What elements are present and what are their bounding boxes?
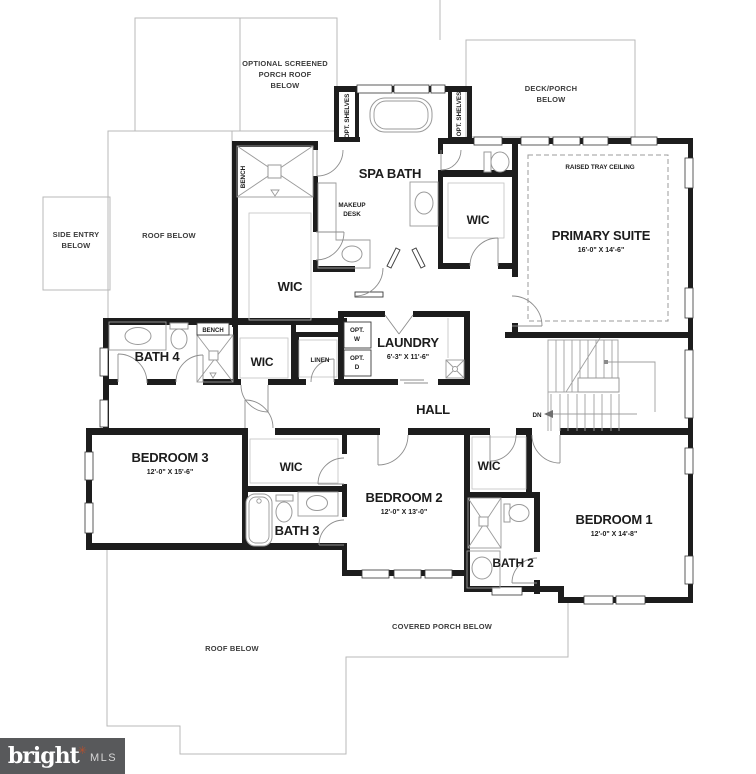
label-dn: DN	[532, 412, 542, 419]
label-wic-primary-b: WIC	[278, 279, 303, 294]
label-wic-hall: WIC	[251, 355, 274, 369]
opt-washer-box	[344, 322, 371, 348]
label-opt-d-1: OPT.	[350, 355, 364, 362]
label-deck-porch-2: BELOW	[537, 95, 567, 104]
label-opt-w-2: W	[354, 336, 360, 343]
label-covered-porch: COVERED PORCH BELOW	[392, 622, 493, 631]
label-laundry: LAUNDRY	[377, 335, 439, 350]
stairs	[544, 338, 655, 431]
label-roof-below-upper: ROOF BELOW	[142, 231, 196, 240]
label-bedroom1: BEDROOM 1	[576, 512, 653, 527]
label-wic-primary-a: WIC	[467, 213, 490, 227]
label-side-entry-1: SIDE ENTRY	[53, 230, 100, 239]
spa-vanity-sink	[410, 182, 438, 226]
wic-primary-a-shelves	[448, 183, 504, 238]
label-hall: HALL	[416, 402, 450, 417]
label-opt-shelves-left: OPT. SHELVES	[344, 94, 351, 139]
label-opt-w-1: OPT.	[350, 327, 364, 334]
spa-tub	[370, 98, 432, 132]
label-makeup-desk-2: DESK	[343, 211, 361, 218]
bath3-sink	[298, 492, 338, 516]
label-bedroom3: BEDROOM 3	[132, 450, 209, 465]
label-bench-primary: BENCH	[240, 165, 247, 188]
label-optional-porch-2: PORCH ROOF	[259, 70, 312, 79]
opt-dryer-box	[344, 350, 371, 376]
label-bedroom2: BEDROOM 2	[366, 490, 443, 505]
laundry-pocket-door	[400, 380, 428, 383]
label-bath4: BATH 4	[135, 349, 181, 364]
bath3-toilet	[276, 495, 293, 522]
bath4-vanity-sink	[109, 322, 166, 350]
label-wic-bedroom2: WIC	[280, 460, 303, 474]
label-side-entry-2: BELOW	[62, 241, 92, 250]
bath4-toilet	[170, 323, 188, 349]
label-primary-suite-dims: 16'-0" X 14'-6"	[578, 247, 625, 254]
bath2-shower	[468, 498, 501, 548]
label-bench-bath4: BENCH	[202, 328, 223, 334]
label-opt-d-2: D	[355, 364, 360, 371]
label-optional-porch-1: OPTIONAL SCREENED	[242, 59, 328, 68]
makeup-desk-counter	[318, 183, 370, 268]
label-primary-suite: PRIMARY SUITE	[552, 228, 651, 243]
wic-primary-b-shelves	[249, 213, 311, 320]
floorplan-page: OPTIONAL SCREENED PORCH ROOF BELOW DECK/…	[0, 0, 756, 774]
label-laundry-dims: 6'-3" X 11'-6"	[387, 354, 429, 361]
label-bath3: BATH 3	[275, 523, 320, 538]
label-bedroom1-dims: 12'-0" X 14'-8"	[591, 531, 638, 538]
label-deck-porch-1: DECK/PORCH	[525, 84, 577, 93]
labels: OPTIONAL SCREENED PORCH ROOF BELOW DECK/…	[53, 59, 653, 653]
spa-wc-toilet	[484, 152, 509, 172]
label-spa-bath: SPA BATH	[359, 166, 421, 181]
bath4-shower	[197, 335, 233, 382]
laundry-swing-doors	[385, 315, 413, 334]
logo-wordmark: bright	[8, 745, 79, 767]
down-arrow-icon	[544, 410, 553, 418]
floorplan-drawing: OPTIONAL SCREENED PORCH ROOF BELOW DECK/…	[0, 0, 756, 774]
label-opt-shelves-right: OPT. SHELVES	[456, 92, 463, 137]
brightmls-logo: bright ✳ MLS	[0, 738, 125, 774]
double-door-leaf-left	[387, 248, 400, 268]
laundry-utility-sink	[446, 360, 464, 378]
label-raised-tray: RAISED TRAY CEILING	[565, 164, 634, 171]
logo-asterisk-icon: ✳	[78, 744, 87, 757]
label-bedroom2-dims: 12'-0" X 13'-0"	[381, 509, 428, 516]
roof-porch-lower-outline	[107, 550, 568, 754]
label-linen: LINEN	[311, 357, 330, 364]
logo-mls-text: MLS	[90, 752, 117, 764]
label-wic-bedroom1: WIC	[478, 459, 501, 473]
double-door-leaf-right	[412, 248, 425, 268]
label-makeup-desk-1: MAKEUP	[338, 202, 365, 209]
label-optional-porch-3: BELOW	[271, 81, 301, 90]
label-roof-below-lower: ROOF BELOW	[205, 644, 259, 653]
primary-shower	[237, 146, 313, 197]
bath3-tub	[246, 494, 272, 546]
bath2-toilet	[504, 504, 529, 522]
roof-below-upper-outline	[108, 131, 232, 322]
label-bedroom3-dims: 12'-0" X 15'-6"	[147, 469, 194, 476]
label-bath2: BATH 2	[492, 556, 534, 570]
